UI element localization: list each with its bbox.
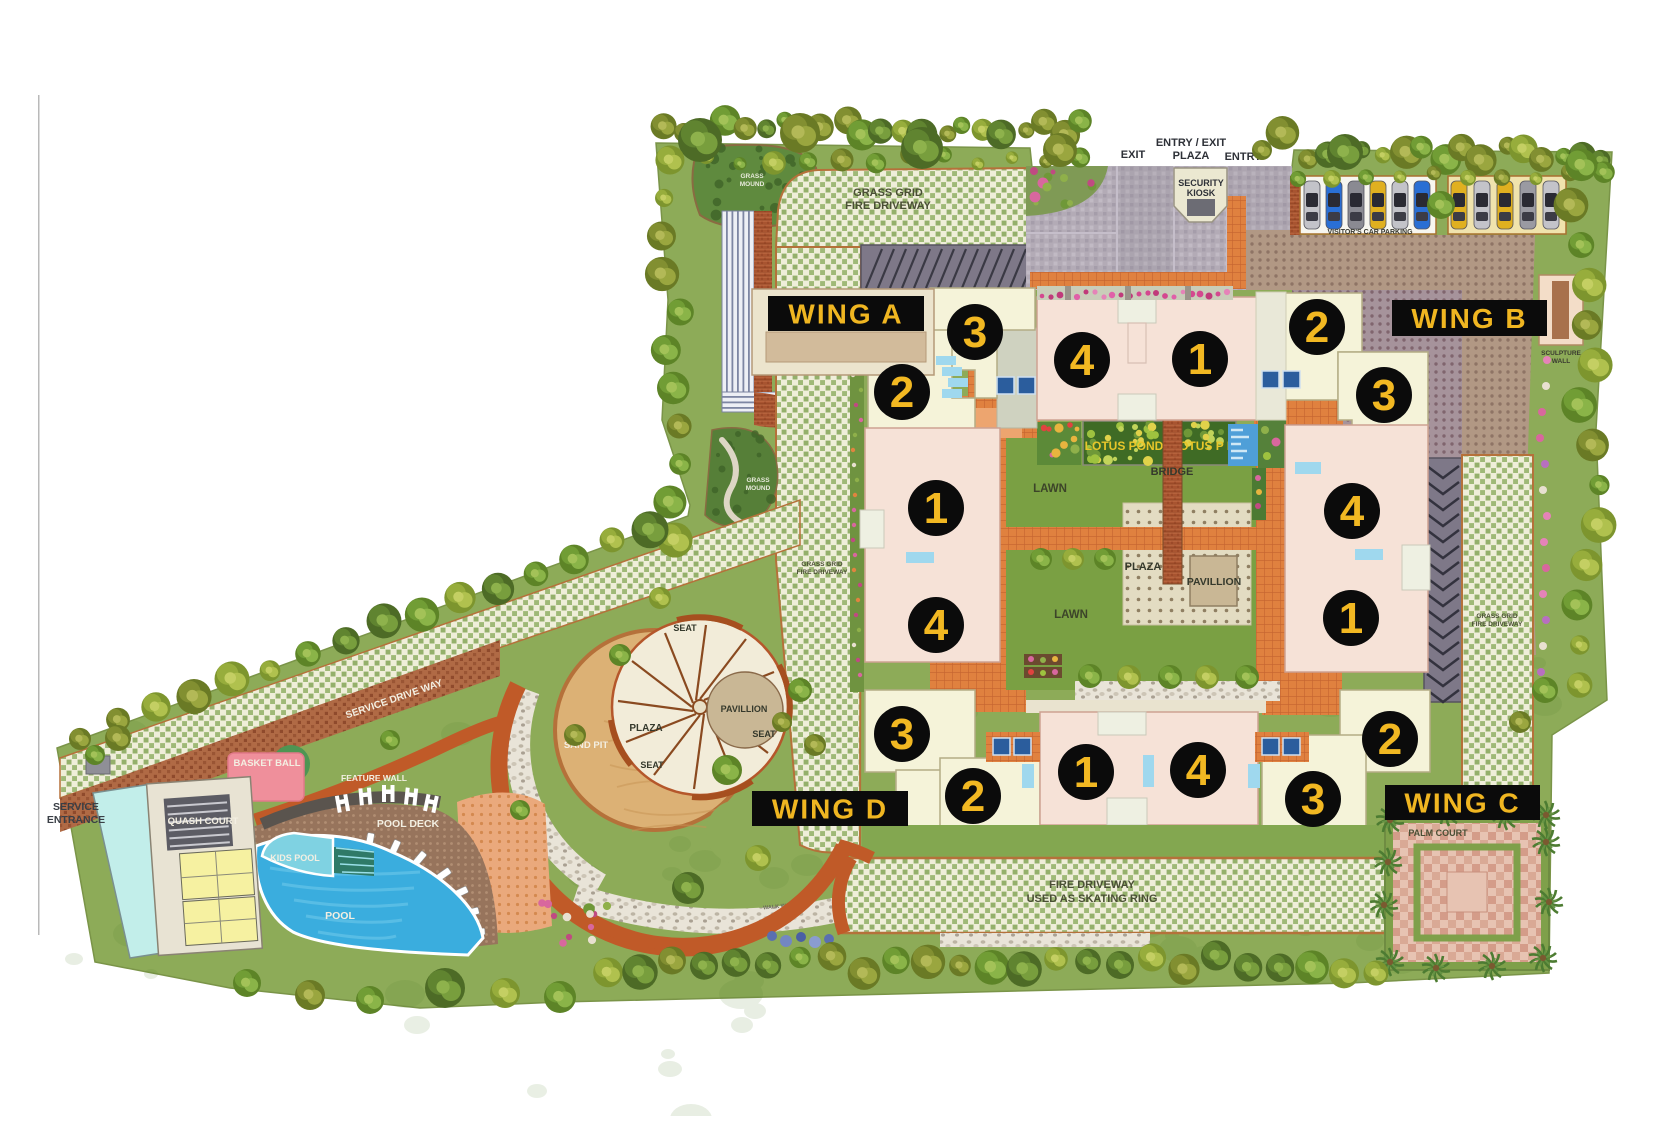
svg-text:2: 2: [1305, 303, 1329, 352]
svg-text:SCULPTURE: SCULPTURE: [1541, 350, 1581, 357]
svg-text:POOL DECK: POOL DECK: [377, 818, 440, 830]
svg-text:BRIDGE: BRIDGE: [1151, 466, 1194, 478]
svg-text:PAVILLION: PAVILLION: [1187, 576, 1241, 588]
svg-text:2: 2: [890, 368, 914, 417]
svg-text:SERVICE: SERVICE: [53, 801, 99, 813]
svg-text:FIRE DRIVEWAY: FIRE DRIVEWAY: [845, 200, 931, 212]
svg-text:3: 3: [963, 308, 987, 357]
svg-text:3: 3: [1301, 775, 1325, 824]
svg-text:SEAT: SEAT: [640, 760, 664, 770]
svg-text:PLAZA: PLAZA: [1125, 561, 1162, 573]
svg-text:VISITOR'S CAR PARKING: VISITOR'S CAR PARKING: [1327, 229, 1413, 236]
svg-text:1: 1: [1339, 594, 1363, 643]
svg-text:SECURITY: SECURITY: [1178, 178, 1224, 188]
svg-text:WING D: WING D: [772, 794, 888, 825]
svg-text:SEAT: SEAT: [752, 729, 776, 739]
svg-text:LAWN: LAWN: [1054, 609, 1088, 621]
svg-text:PLAZA: PLAZA: [1173, 150, 1210, 162]
svg-text:1: 1: [1074, 748, 1098, 797]
svg-text:1: 1: [1188, 335, 1212, 384]
svg-text:GRASS GRID: GRASS GRID: [853, 187, 923, 199]
svg-text:GRASS GRID: GRASS GRID: [1476, 613, 1517, 620]
svg-text:ENTRY / EXIT: ENTRY / EXIT: [1156, 137, 1227, 149]
svg-text:3: 3: [1372, 371, 1396, 420]
svg-text:LOTUS POND: LOTUS POND: [1085, 439, 1164, 453]
svg-text:GRASS: GRASS: [740, 173, 764, 180]
svg-text:2: 2: [961, 772, 985, 821]
svg-text:LAWN: LAWN: [1033, 483, 1067, 495]
svg-text:4: 4: [1070, 336, 1095, 385]
svg-text:EXIT: EXIT: [1121, 149, 1146, 161]
svg-text:PLAZA: PLAZA: [629, 723, 662, 734]
svg-text:POOL: POOL: [325, 910, 355, 922]
svg-text:PAVILLION: PAVILLION: [721, 704, 768, 714]
svg-text:FEATURE WALL: FEATURE WALL: [341, 773, 407, 783]
svg-text:MOUND: MOUND: [740, 181, 765, 188]
svg-text:FIRE DRIVEWAY: FIRE DRIVEWAY: [1472, 621, 1523, 628]
svg-text:2: 2: [1378, 715, 1402, 764]
svg-text:QUASH COURT: QUASH COURT: [168, 816, 239, 827]
svg-text:MOUND: MOUND: [746, 485, 771, 492]
svg-text:WING B: WING B: [1411, 303, 1527, 334]
svg-text:BASKET BALL: BASKET BALL: [233, 758, 300, 769]
svg-text:4: 4: [924, 601, 949, 650]
svg-text:GRASS: GRASS: [746, 477, 770, 484]
svg-text:FIRE DRIVEWAY: FIRE DRIVEWAY: [1049, 879, 1135, 891]
svg-text:SEAT: SEAT: [673, 623, 697, 633]
svg-text:3: 3: [890, 710, 914, 759]
svg-text:WING A: WING A: [788, 299, 903, 330]
svg-text:4: 4: [1340, 487, 1365, 536]
svg-text:KIDS POOL: KIDS POOL: [270, 853, 320, 863]
svg-text:KIOSK: KIOSK: [1187, 188, 1216, 198]
svg-text:WING C: WING C: [1404, 788, 1520, 819]
svg-text:FIRE DRIVEWAY: FIRE DRIVEWAY: [797, 569, 848, 576]
svg-text:PALM COURT: PALM COURT: [1408, 828, 1468, 838]
svg-text:4: 4: [1186, 746, 1211, 795]
svg-text:1: 1: [924, 484, 948, 533]
svg-text:USED AS SKATING RING: USED AS SKATING RING: [1027, 893, 1158, 905]
svg-text:ENTRANCE: ENTRANCE: [47, 814, 105, 826]
svg-text:WALL: WALL: [1552, 358, 1570, 365]
svg-text:GRASS GRID: GRASS GRID: [801, 561, 842, 568]
